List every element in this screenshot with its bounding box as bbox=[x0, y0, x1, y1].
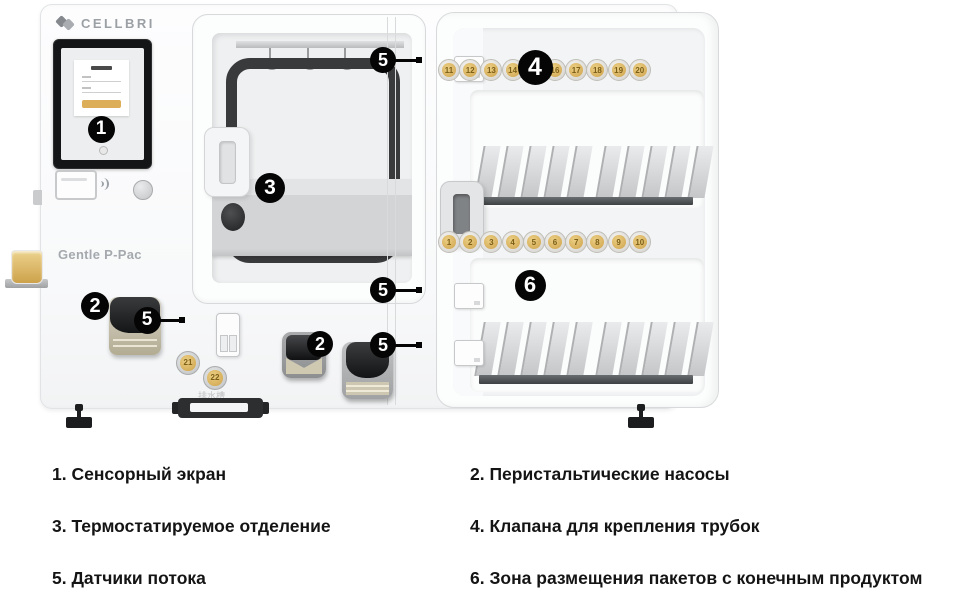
legend-item: 2. Перистальтические насосы bbox=[470, 464, 730, 485]
divider-base-top bbox=[479, 197, 693, 205]
pump-insert bbox=[286, 358, 322, 374]
flow-sensor-mid-2 bbox=[454, 340, 484, 366]
login-button bbox=[82, 100, 121, 108]
callout-2: 2 bbox=[307, 331, 333, 357]
model-label: Gentle P-Pac bbox=[58, 247, 142, 262]
legend-item: 5. Датчики потока bbox=[52, 568, 206, 589]
callout-leader-dot bbox=[179, 317, 185, 323]
cellbri-logo-icon bbox=[57, 15, 75, 31]
contactless-icon bbox=[97, 177, 111, 191]
sample-cup bbox=[11, 250, 43, 284]
legend-item: 4. Клапана для крепления трубок bbox=[470, 516, 760, 537]
tube-valve-20: 20 bbox=[629, 59, 651, 81]
touchscreen-display bbox=[61, 48, 144, 160]
login-field-1 bbox=[82, 74, 121, 82]
login-field-2 bbox=[82, 85, 121, 93]
callout-4: 4 bbox=[518, 50, 553, 85]
tube-valve-19: 19 bbox=[608, 59, 630, 81]
card-reader bbox=[55, 170, 97, 200]
drain-tray bbox=[172, 396, 269, 422]
legend: 1. Сенсорный экран3. Термостатируемое от… bbox=[0, 440, 960, 610]
callout-5: 5 bbox=[370, 332, 396, 358]
callout-5: 5 bbox=[370, 47, 396, 73]
flow-sensor-front bbox=[216, 313, 240, 357]
product-diagram: CELLBRI Gentle P-Pac bbox=[0, 0, 960, 610]
side-tab bbox=[33, 190, 42, 205]
power-button bbox=[133, 180, 153, 200]
callout-3: 3 bbox=[255, 173, 285, 203]
chamber-door-handle bbox=[204, 127, 250, 197]
legend-item: 1. Сенсорный экран bbox=[52, 464, 226, 485]
callout-leader-dot bbox=[416, 342, 422, 348]
tube-valve-6: 6 bbox=[544, 231, 566, 253]
callout-5: 5 bbox=[134, 307, 161, 334]
divider-base-bottom bbox=[479, 375, 693, 384]
tube-valve-1: 1 bbox=[438, 231, 460, 253]
pump-base bbox=[346, 382, 389, 395]
tube-valve-4: 4 bbox=[502, 231, 524, 253]
tube-valve-21: 21 bbox=[176, 351, 200, 375]
machine-body: CELLBRI Gentle P-Pac bbox=[40, 4, 678, 409]
callout-leader-dot bbox=[416, 287, 422, 293]
callout-6: 6 bbox=[515, 270, 546, 301]
legend-item: 6. Зона размещения пакетов с конечным пр… bbox=[470, 568, 922, 589]
callout-5: 5 bbox=[370, 277, 396, 303]
tube-valve-10: 10 bbox=[629, 231, 651, 253]
login-logo bbox=[91, 66, 112, 70]
bag-dividers-top bbox=[479, 146, 695, 198]
callout-leader-dot bbox=[416, 57, 422, 63]
tube-valve-5: 5 bbox=[523, 231, 545, 253]
brand-logo: CELLBRI bbox=[57, 14, 155, 32]
tube-valve-22: 22 bbox=[203, 366, 227, 390]
callout-2: 2 bbox=[81, 292, 109, 320]
leveling-foot-left bbox=[66, 404, 92, 433]
flow-sensor-mid-1 bbox=[454, 283, 484, 309]
bag-dividers-bottom bbox=[479, 322, 695, 376]
home-button bbox=[99, 146, 108, 155]
brand-name: CELLBRI bbox=[81, 16, 155, 31]
chamber-knob bbox=[221, 203, 245, 231]
legend-item: 3. Термостатируемое отделение bbox=[52, 516, 331, 537]
tube-valve-11: 11 bbox=[438, 59, 460, 81]
login-card bbox=[74, 60, 129, 116]
leveling-foot-right bbox=[628, 404, 654, 433]
tube-valve-9: 9 bbox=[608, 231, 630, 253]
callout-1: 1 bbox=[88, 116, 115, 143]
touchscreen bbox=[53, 39, 152, 169]
